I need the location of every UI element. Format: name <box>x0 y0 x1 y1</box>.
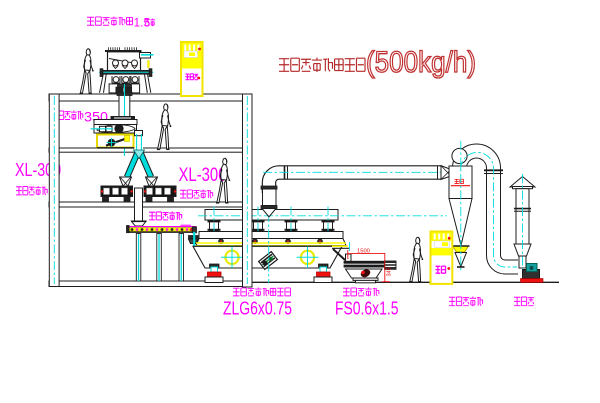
svg-text:345: 345 <box>387 267 393 276</box>
svg-text:ZLG6x0.75: ZLG6x0.75 <box>223 298 292 319</box>
svg-text:1.5: 1.5 <box>134 16 151 30</box>
svg-text:1500: 1500 <box>357 249 370 255</box>
svg-text:(500kg/h): (500kg/h) <box>366 46 476 79</box>
svg-text:FS0.6x1.5: FS0.6x1.5 <box>335 298 399 319</box>
svg-text:XL-300: XL-300 <box>179 164 227 186</box>
